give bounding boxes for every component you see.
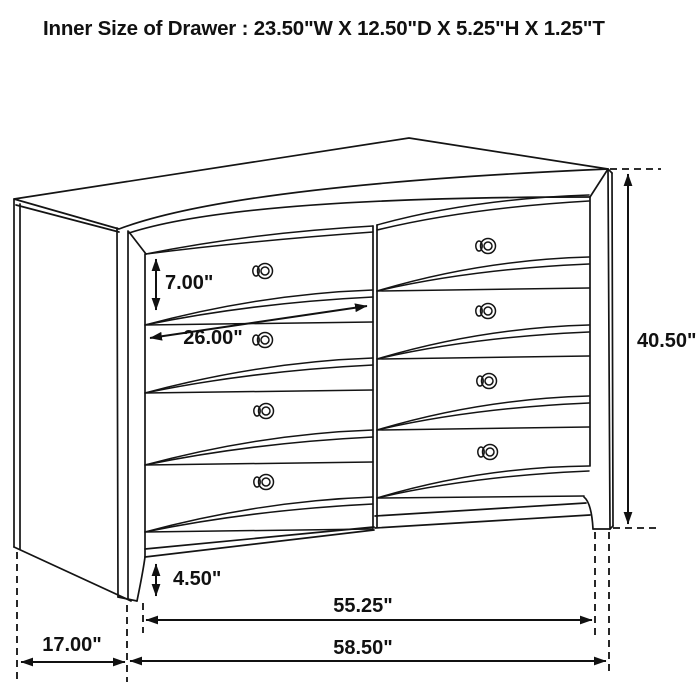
- dim-overall-width-label: 58.50": [333, 637, 393, 659]
- dresser-dimension-diagram: Inner Size of Drawer : 23.50"W X 12.50"D…: [0, 0, 700, 700]
- dim-drawer-inner-width-label: 26.00": [183, 327, 243, 349]
- drawer-knob: [254, 475, 274, 490]
- drawer-knob: [478, 445, 498, 460]
- dim-drawer-front-height-label: 7.00": [165, 272, 213, 294]
- dim-overall-height: 40.50": [610, 169, 697, 528]
- dimension-diagram-page: Inner Size of Drawer : 23.50"W X 12.50"D…: [0, 0, 700, 700]
- drawer-knob: [476, 239, 496, 254]
- dresser-drawing: [14, 138, 613, 601]
- drawer-knob: [253, 333, 273, 348]
- dim-depth-label: 17.00": [42, 634, 102, 656]
- drawer-knob: [254, 404, 274, 419]
- dim-drawer-front-height: 7.00": [156, 259, 213, 310]
- dim-foot-height: 4.50": [156, 564, 221, 596]
- page-title: Inner Size of Drawer : 23.50"W X 12.50"D…: [43, 17, 605, 40]
- dim-overall-height-label: 40.50": [637, 330, 697, 352]
- dresser-right-edge: [584, 169, 613, 529]
- dim-foot-height-label: 4.50": [173, 568, 221, 590]
- dim-base-width-label: 55.25": [333, 595, 393, 617]
- dimension-annotations: 7.00" 26.00" 40.50" 4.50" 55.25" 17.00: [17, 169, 697, 682]
- drawer-knob: [253, 264, 273, 279]
- dresser-left-panel: [14, 199, 137, 601]
- dim-depth: 17.00": [17, 552, 127, 682]
- drawer-knob: [476, 304, 496, 319]
- drawer-knob: [477, 374, 497, 389]
- dresser-base: [145, 503, 590, 557]
